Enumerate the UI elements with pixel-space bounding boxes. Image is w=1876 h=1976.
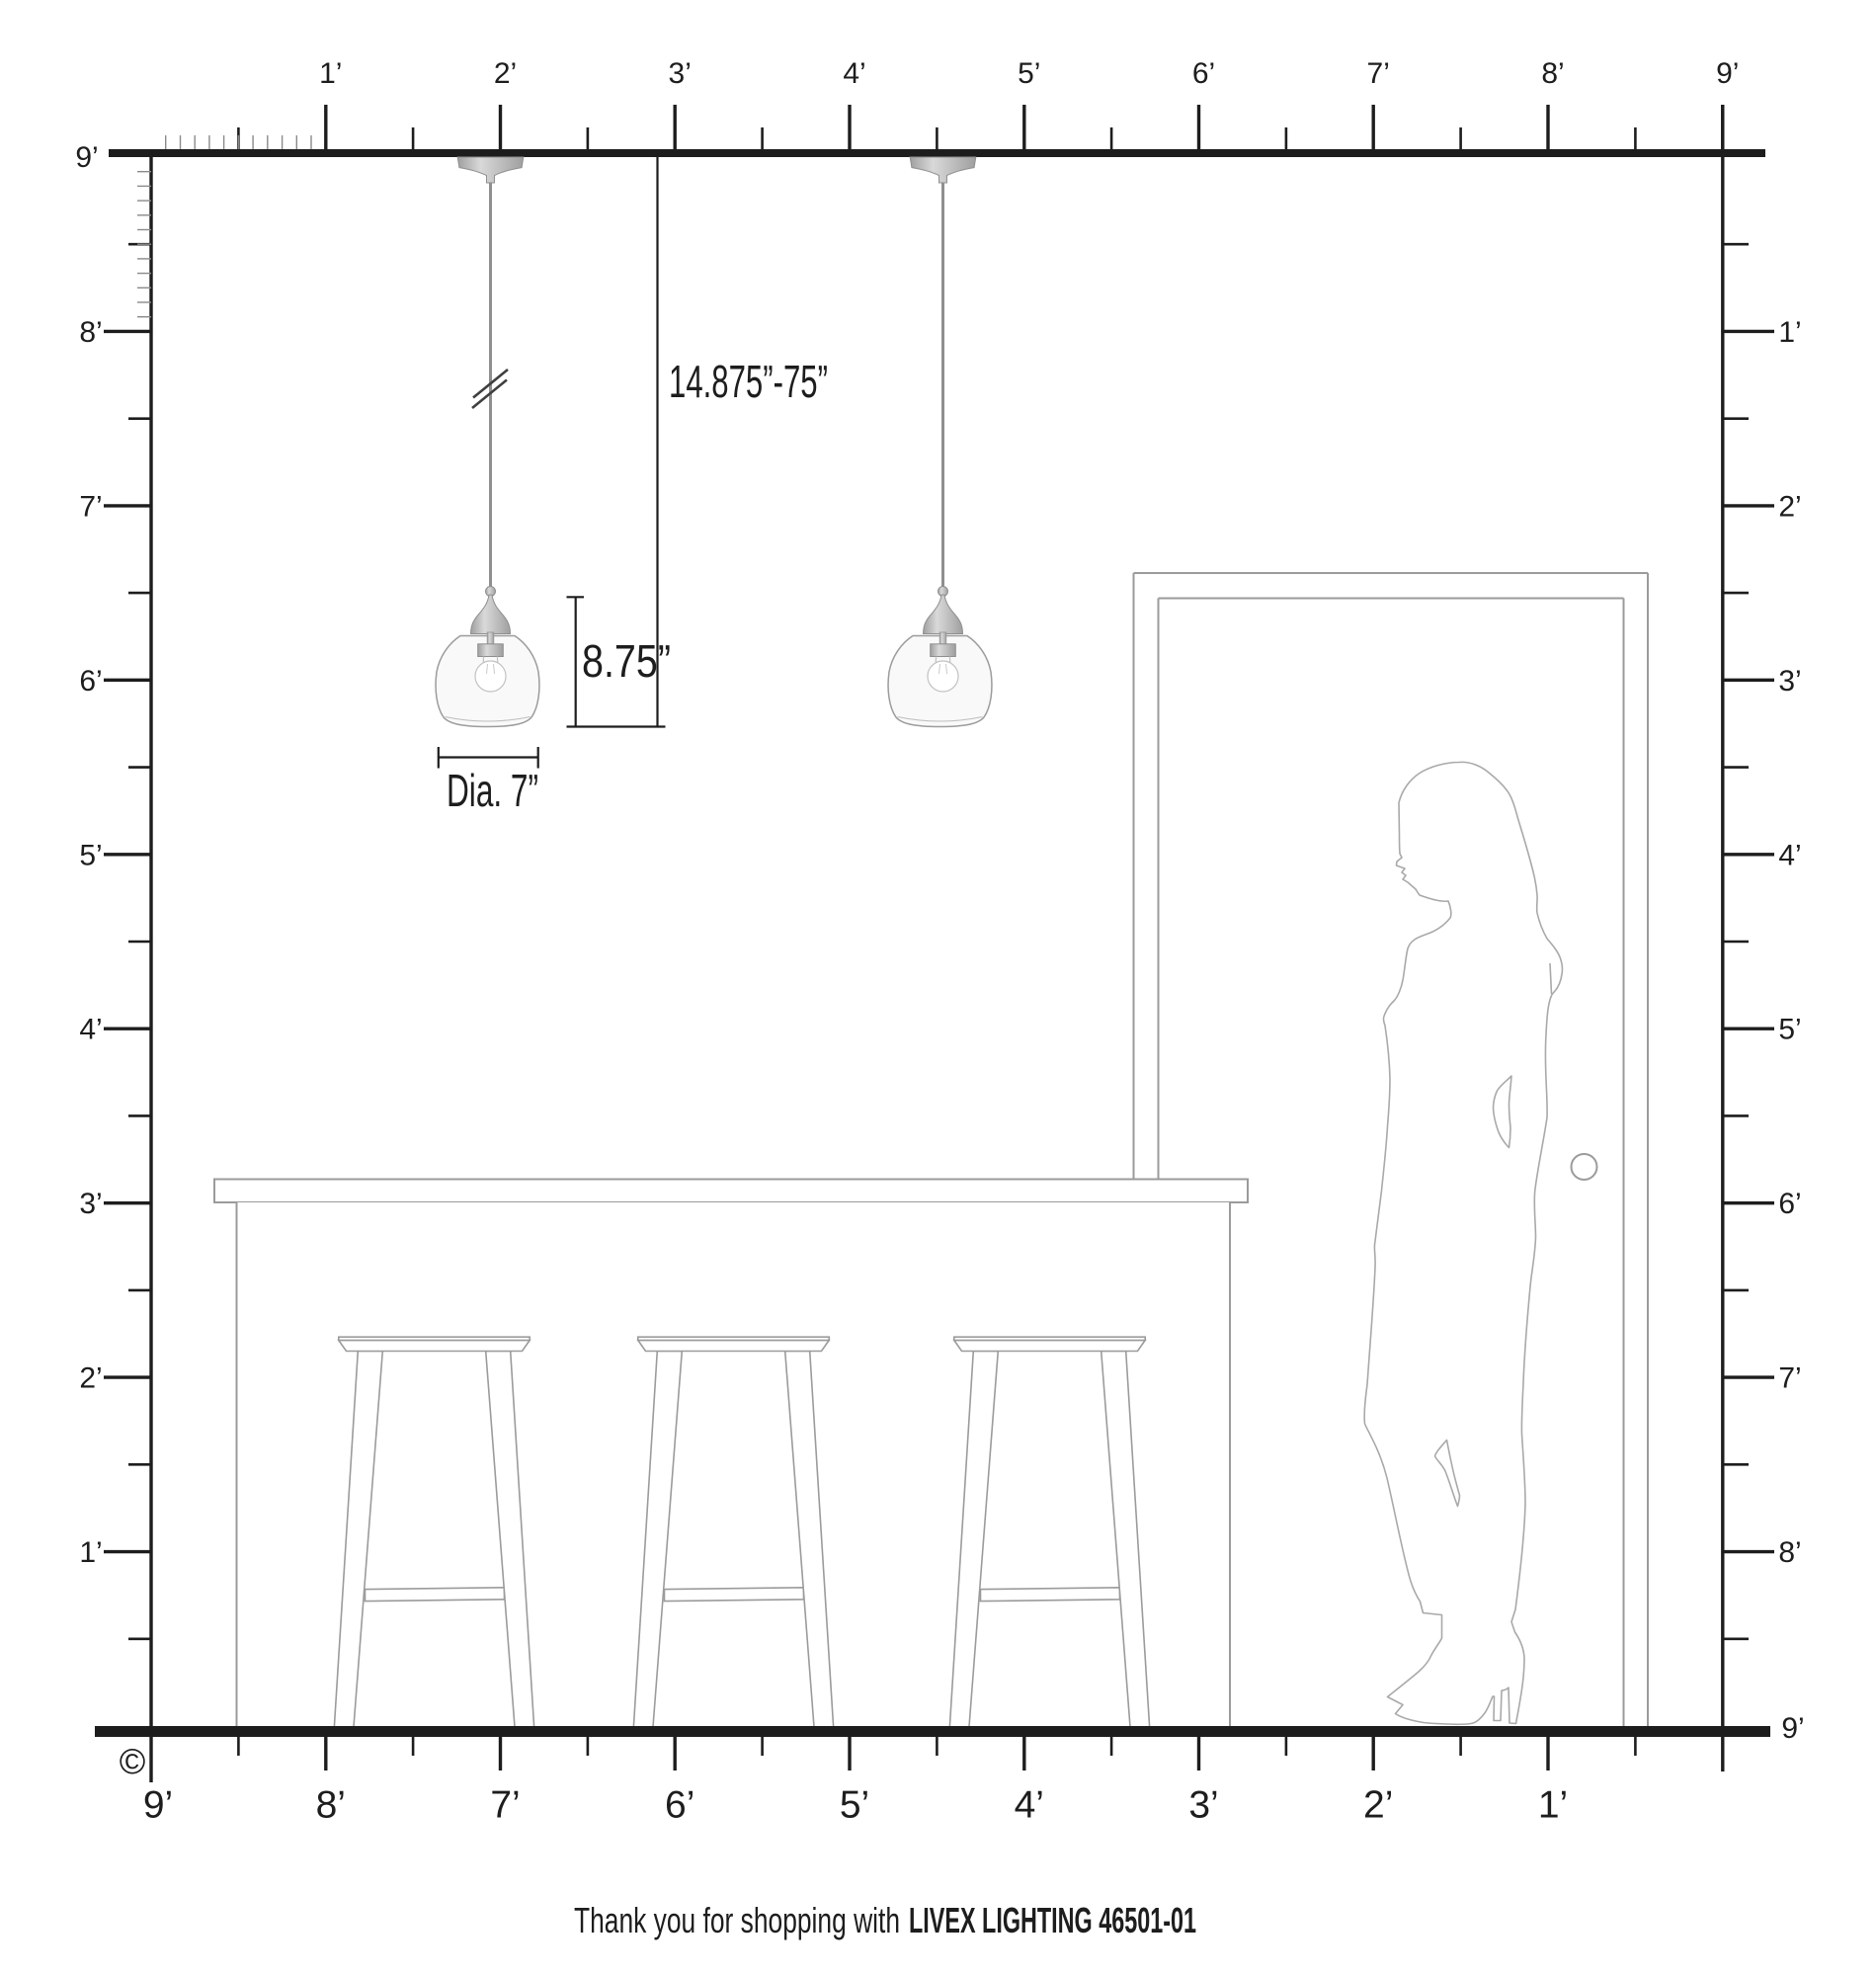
svg-text:9’: 9’ [143, 1784, 173, 1827]
svg-text:3’: 3’ [1778, 665, 1801, 698]
svg-text:9’: 9’ [1716, 57, 1739, 90]
svg-text:Thank you for shopping with: Thank you for shopping with [574, 1900, 900, 1940]
svg-text:©: © [120, 1741, 146, 1781]
svg-text:2’: 2’ [1778, 490, 1801, 523]
svg-text:6’: 6’ [665, 1784, 694, 1827]
svg-text:Dia. 7”: Dia. 7” [447, 765, 538, 816]
svg-text:3’: 3’ [669, 57, 692, 90]
svg-text:14.875”-75”: 14.875”-75” [669, 356, 828, 407]
svg-text:2’: 2’ [79, 1362, 102, 1395]
svg-text:8.75”: 8.75” [582, 635, 671, 687]
svg-text:5’: 5’ [1778, 1014, 1801, 1046]
svg-text:4’: 4’ [843, 57, 865, 90]
svg-text:2’: 2’ [1363, 1784, 1393, 1827]
svg-text:LIVEX LIGHTING 46501-01: LIVEX LIGHTING 46501-01 [909, 1900, 1196, 1940]
svg-text:5’: 5’ [1018, 57, 1040, 90]
svg-text:9’: 9’ [1781, 1712, 1804, 1745]
svg-text:1’: 1’ [319, 57, 342, 90]
svg-text:7’: 7’ [490, 1784, 520, 1827]
svg-text:6’: 6’ [1778, 1188, 1801, 1220]
svg-text:1’: 1’ [79, 1536, 102, 1569]
svg-text:5’: 5’ [79, 839, 102, 871]
svg-text:7’: 7’ [1367, 57, 1390, 90]
svg-text:9’: 9’ [75, 141, 98, 174]
svg-text:6’: 6’ [1192, 57, 1215, 90]
svg-text:8’: 8’ [1541, 57, 1564, 90]
svg-text:1’: 1’ [1538, 1784, 1568, 1827]
svg-text:4’: 4’ [79, 1014, 102, 1046]
svg-text:7’: 7’ [1778, 1362, 1801, 1395]
svg-text:1’: 1’ [1778, 316, 1801, 349]
svg-text:7’: 7’ [79, 490, 102, 523]
svg-text:2’: 2’ [494, 57, 517, 90]
svg-text:8’: 8’ [1778, 1536, 1801, 1569]
svg-text:3’: 3’ [79, 1188, 102, 1220]
svg-text:8’: 8’ [316, 1784, 346, 1827]
svg-text:4’: 4’ [1778, 839, 1801, 871]
svg-text:6’: 6’ [79, 665, 102, 698]
svg-text:3’: 3’ [1188, 1784, 1218, 1827]
svg-text:5’: 5’ [840, 1784, 869, 1827]
svg-text:4’: 4’ [1015, 1784, 1044, 1827]
svg-text:8’: 8’ [79, 316, 102, 349]
